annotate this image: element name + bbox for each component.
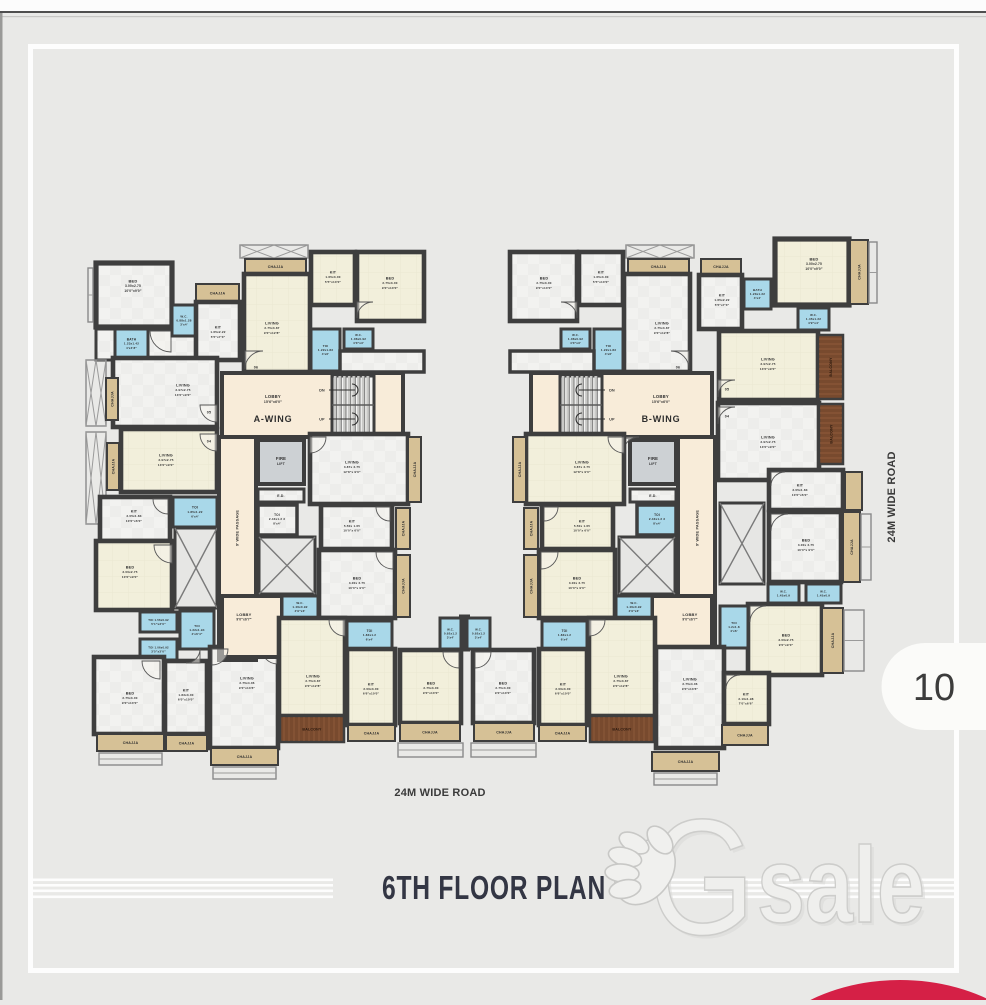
svg-text:2.75x3.00: 2.75x3.00 — [423, 686, 438, 690]
svg-text:3.00x2.75: 3.00x2.75 — [806, 262, 822, 266]
svg-text:3.97x2.75: 3.97x2.75 — [175, 388, 190, 392]
svg-text:4′x6′: 4′x6′ — [322, 352, 330, 356]
svg-text:1.45x0.9: 1.45x0.9 — [777, 594, 790, 598]
svg-text:6′x4′: 6′x4′ — [366, 637, 374, 641]
svg-text:4′x6′: 4′x6′ — [605, 352, 613, 356]
svg-text:9′0″x10′0″: 9′0″x10′0″ — [536, 286, 553, 290]
svg-text:BED: BED — [809, 256, 818, 261]
svg-text:CHAJJA: CHAJJA — [850, 539, 854, 555]
svg-text:BED: BED — [126, 565, 135, 569]
svg-text:15′6″x6′0″: 15′6″x6′0″ — [652, 400, 670, 404]
svg-text:4′x4′: 4′x4′ — [754, 296, 762, 300]
svg-text:CHAJJA: CHAJJA — [529, 578, 533, 594]
svg-text:E.D.: E.D. — [649, 494, 656, 498]
svg-text:2.10x1.98: 2.10x1.98 — [738, 697, 753, 701]
svg-text:BED: BED — [386, 276, 395, 280]
svg-text:9′0″x6′7″: 9′0″x6′7″ — [682, 618, 698, 622]
svg-text:A-WING: A-WING — [254, 414, 293, 424]
svg-text:3.87x 2.75: 3.87x 2.75 — [574, 465, 590, 469]
svg-text:CHAJJA: CHAJJA — [555, 731, 571, 735]
svg-text:05: 05 — [725, 387, 729, 391]
svg-text:BED: BED — [128, 278, 137, 283]
svg-text:7′0″x6′6″: 7′0″x6′6″ — [739, 702, 754, 706]
svg-text:CHAJJA: CHAJJA — [401, 521, 405, 537]
svg-text:9′0″x13′6″: 9′0″x13′6″ — [682, 687, 699, 691]
svg-text:9′0″x9′0″: 9′0″x9′0″ — [779, 643, 794, 647]
svg-text:10′0″x 9′0″: 10′0″x 9′0″ — [568, 586, 586, 590]
svg-text:LIVING: LIVING — [345, 460, 359, 464]
svg-text:10′0″x9′0″: 10′0″x9′0″ — [805, 267, 822, 271]
svg-text:KIT: KIT — [719, 294, 726, 298]
svg-text:KIT: KIT — [797, 484, 804, 488]
svg-text:BED: BED — [126, 691, 135, 695]
svg-text:4′3″x3′: 4′3″x3′ — [353, 341, 364, 345]
svg-text:BALCONY: BALCONY — [829, 424, 833, 444]
svg-text:BALCONY: BALCONY — [612, 727, 632, 731]
svg-text:3′x4′: 3′x4′ — [447, 635, 455, 639]
svg-text:2.00x3.00: 2.00x3.00 — [363, 687, 378, 691]
svg-text:LIVING: LIVING — [761, 435, 775, 439]
svg-text:10′0″x 9′0″: 10′0″x 9′0″ — [797, 548, 815, 552]
svg-text:10′0″x 6′0″: 10′0″x 6′0″ — [573, 529, 591, 533]
svg-text:3.97x2.75: 3.97x2.75 — [760, 362, 775, 366]
svg-text:4′x6′: 4′x6′ — [730, 629, 738, 633]
svg-text:LIVING: LIVING — [265, 321, 279, 325]
svg-text:3.00x2.75: 3.00x2.75 — [125, 284, 141, 288]
svg-text:9′0″x12′8″: 9′0″x12′8″ — [654, 331, 671, 335]
svg-text:CHAJJA: CHAJJA — [737, 733, 753, 737]
svg-text:BED: BED — [540, 276, 549, 280]
svg-text:LIVING: LIVING — [240, 676, 254, 680]
svg-text:2.75x3.87: 2.75x3.87 — [613, 679, 628, 683]
svg-text:3′x4′: 3′x4′ — [180, 323, 188, 327]
svg-text:3′5″x3′0″: 3′5″x3′0″ — [151, 650, 166, 654]
svg-text:LIVING: LIVING — [575, 460, 589, 464]
svg-text:LIVING: LIVING — [761, 357, 775, 361]
svg-text:BED: BED — [427, 681, 436, 685]
svg-text:9′0″x6′7″: 9′0″x6′7″ — [236, 618, 252, 622]
svg-text:LIFT: LIFT — [277, 462, 286, 466]
svg-text:06: 06 — [254, 365, 258, 369]
svg-text:9′0″x10′0″: 9′0″x10′0″ — [382, 286, 399, 290]
svg-text:6′x4′: 6′x4′ — [561, 637, 569, 641]
svg-text:4′x4′8″: 4′x4′8″ — [126, 346, 137, 350]
svg-text:BALCONY: BALCONY — [302, 727, 322, 731]
svg-text:13′0″x9′0″: 13′0″x9′0″ — [175, 393, 192, 397]
svg-text:2.43x1.2 3: 2.43x1.2 3 — [649, 517, 665, 521]
svg-text:2.75x3.87: 2.75x3.87 — [654, 326, 669, 330]
svg-text:3.87x 2.75: 3.87x 2.75 — [344, 465, 360, 469]
svg-text:CHAJJA: CHAJJA — [713, 265, 729, 269]
svg-text:CHAJJA: CHAJJA — [422, 730, 438, 734]
svg-text:9′0″x12′8″: 9′0″x12′8″ — [305, 684, 322, 688]
svg-text:10: 10 — [913, 667, 955, 709]
svg-text:LIFT: LIFT — [649, 462, 658, 466]
svg-text:10′0″x 9′0″: 10′0″x 9′0″ — [348, 586, 366, 590]
svg-text:UP: UP — [319, 417, 325, 421]
svg-text:2.75x3.00: 2.75x3.00 — [495, 686, 510, 690]
svg-text:BED: BED — [353, 576, 362, 580]
svg-text:1.65x3.00: 1.65x3.00 — [325, 275, 340, 279]
svg-text:6′0″x10′0″: 6′0″x10′0″ — [178, 698, 195, 702]
svg-text:4′9″x3′: 4′9″x3′ — [295, 609, 306, 613]
svg-text:BED: BED — [499, 681, 508, 685]
svg-text:DN: DN — [609, 388, 615, 392]
svg-text:4′9″x4′: 4′9″x4′ — [808, 321, 819, 325]
svg-text:LOBBY: LOBBY — [237, 612, 252, 617]
svg-text:3.05x1.83: 3.05x1.83 — [126, 514, 141, 518]
svg-text:CHAJJA: CHAJJA — [401, 578, 405, 594]
svg-text:3.05x1.83: 3.05x1.83 — [792, 488, 807, 492]
svg-text:3.97x2.75: 3.97x2.75 — [158, 458, 173, 462]
svg-text:1.83x3.00: 1.83x3.00 — [178, 693, 193, 697]
svg-text:5′5″x10′0″: 5′5″x10′0″ — [325, 280, 342, 284]
svg-text:9′ WIDE PASSAGE: 9′ WIDE PASSAGE — [235, 510, 239, 547]
svg-text:KIT: KIT — [330, 271, 337, 275]
svg-text:3.97x2.75: 3.97x2.75 — [760, 440, 775, 444]
svg-text:BED: BED — [802, 538, 811, 542]
svg-text:FIRE: FIRE — [276, 456, 286, 461]
svg-text:3.00x2.75: 3.00x2.75 — [778, 638, 793, 642]
svg-text:3.00x 2.75: 3.00x 2.75 — [798, 543, 814, 547]
svg-text:2.75x3.00: 2.75x3.00 — [122, 696, 137, 700]
svg-text:E.D.: E.D. — [277, 494, 284, 498]
svg-text:KIT: KIT — [598, 271, 605, 275]
svg-text:BED: BED — [782, 633, 791, 637]
svg-text:8′x4′: 8′x4′ — [273, 521, 281, 525]
svg-text:8′x4′: 8′x4′ — [653, 521, 661, 525]
svg-text:CHAJJA: CHAJJA — [268, 265, 284, 269]
svg-text:CHAJJA: CHAJJA — [110, 391, 114, 407]
svg-text:2.75x3.87: 2.75x3.87 — [305, 679, 320, 683]
svg-text:3′x4′: 3′x4′ — [475, 635, 483, 639]
svg-text:1.83x1.2: 1.83x1.2 — [558, 633, 571, 637]
svg-text:9′0″x13′6″: 9′0″x13′6″ — [239, 686, 256, 690]
svg-text:3.00x2.75: 3.00x2.75 — [122, 570, 137, 574]
svg-text:04: 04 — [725, 414, 729, 418]
svg-text:KIT: KIT — [183, 689, 190, 693]
svg-text:CHAJJA: CHAJJA — [123, 741, 139, 745]
svg-text:LOBBY: LOBBY — [683, 612, 698, 617]
svg-text:9′0″x12′8″: 9′0″x12′8″ — [613, 684, 630, 688]
svg-text:24M WIDE ROAD: 24M WIDE ROAD — [394, 787, 485, 799]
svg-text:CHAJJA: CHAJJA — [529, 521, 533, 537]
svg-text:KIT: KIT — [131, 510, 138, 514]
svg-text:04: 04 — [207, 439, 211, 443]
svg-text:1.85x1.22: 1.85x1.22 — [187, 510, 202, 514]
svg-text:13′0″x9′0″: 13′0″x9′0″ — [760, 445, 777, 449]
svg-text:LIVING: LIVING — [176, 383, 190, 387]
svg-text:13′0″x9′0″: 13′0″x9′0″ — [158, 463, 175, 467]
svg-text:BALCONY: BALCONY — [829, 357, 833, 377]
svg-text:5′5″x7′3″: 5′5″x7′3″ — [211, 335, 226, 339]
svg-text:1.65x2.22: 1.65x2.22 — [714, 298, 729, 302]
svg-text:2.75x4.06: 2.75x4.06 — [239, 681, 254, 685]
svg-text:LOBBY: LOBBY — [265, 394, 281, 399]
svg-text:9′0″x10′0″: 9′0″x10′0″ — [122, 701, 139, 705]
svg-text:12′8″x 9′0″: 12′8″x 9′0″ — [573, 470, 591, 474]
svg-text:12′8″x 9′0″: 12′8″x 9′0″ — [343, 470, 361, 474]
svg-text:2.75x4.06: 2.75x4.06 — [682, 682, 697, 686]
svg-text:LIVING: LIVING — [655, 321, 669, 325]
svg-text:10′0″x 6′0″: 10′0″x 6′0″ — [343, 529, 361, 533]
svg-text:KIT: KIT — [349, 520, 356, 524]
svg-text:CHAJJA: CHAJJA — [651, 265, 667, 269]
svg-text:6TH FLOOR PLAN: 6TH FLOOR PLAN — [382, 869, 606, 906]
svg-text:06: 06 — [676, 365, 680, 369]
svg-text:9′0″x10′0″: 9′0″x10′0″ — [495, 691, 512, 695]
svg-text:6′6″x10′0″: 6′6″x10′0″ — [363, 692, 380, 696]
svg-text:LOBBY: LOBBY — [653, 394, 669, 399]
svg-text:KIT: KIT — [579, 520, 586, 524]
svg-text:LIVING: LIVING — [159, 453, 173, 457]
svg-text:2.75x3.87: 2.75x3.87 — [264, 326, 279, 330]
svg-text:3.00x 2.75: 3.00x 2.75 — [569, 581, 585, 585]
svg-text:CHAJJA: CHAJJA — [678, 760, 694, 764]
svg-text:5.50x 1.65: 5.50x 1.65 — [574, 524, 590, 528]
svg-text:CHAJJA: CHAJJA — [496, 730, 512, 734]
svg-text:5′1″x3′0″: 5′1″x3′0″ — [151, 622, 166, 626]
svg-text:UP: UP — [609, 417, 615, 421]
svg-text:6′6″x10′0″: 6′6″x10′0″ — [555, 692, 572, 696]
svg-text:CHAJJA: CHAJJA — [210, 291, 226, 295]
svg-text:6′x4′: 6′x4′ — [191, 515, 199, 519]
svg-text:FIRE: FIRE — [648, 456, 658, 461]
svg-text:CHAJJA: CHAJJA — [179, 741, 195, 745]
svg-text:4′3″x3′: 4′3″x3′ — [570, 341, 581, 345]
svg-text:24M WIDE ROAD: 24M WIDE ROAD — [886, 451, 898, 542]
svg-text:4′9″x3′: 4′9″x3′ — [629, 609, 640, 613]
svg-text:1.65x3.00: 1.65x3.00 — [593, 275, 608, 279]
svg-text:1.83x1.2: 1.83x1.2 — [363, 633, 376, 637]
svg-text:9′0″x12′8″: 9′0″x12′8″ — [264, 331, 281, 335]
svg-text:LIVING: LIVING — [683, 677, 697, 681]
svg-text:10′0″x6′0″: 10′0″x6′0″ — [126, 519, 143, 523]
svg-text:CHAJJA: CHAJJA — [831, 633, 835, 649]
svg-text:05: 05 — [207, 410, 211, 414]
svg-text:1.65x2.22: 1.65x2.22 — [210, 330, 225, 334]
svg-text:4′x6′4″: 4′x6′4″ — [192, 632, 203, 636]
svg-text:B-WING: B-WING — [642, 414, 681, 424]
svg-text:sale: sale — [757, 824, 925, 945]
svg-text:CHAJJA: CHAJJA — [518, 462, 522, 478]
svg-text:CHAJJA: CHAJJA — [111, 459, 115, 475]
svg-text:5′5″x10′0″: 5′5″x10′0″ — [593, 280, 610, 284]
svg-text:13′0″x9′0″: 13′0″x9′0″ — [760, 367, 777, 371]
svg-text:15′6″x6′0″: 15′6″x6′0″ — [264, 400, 282, 404]
svg-text:KIT: KIT — [215, 326, 222, 330]
svg-text:9′ WIDE PASSAGE: 9′ WIDE PASSAGE — [695, 510, 699, 547]
svg-text:2.75x3.00: 2.75x3.00 — [382, 281, 397, 285]
svg-text:CHAJJA: CHAJJA — [857, 264, 861, 280]
svg-text:3.00x 2.75: 3.00x 2.75 — [349, 581, 365, 585]
svg-text:9′0″x10′0″: 9′0″x10′0″ — [423, 691, 440, 695]
svg-text:2.00x3.00: 2.00x3.00 — [555, 687, 570, 691]
svg-text:BED: BED — [573, 576, 582, 580]
svg-text:2.75x3.00: 2.75x3.00 — [536, 281, 551, 285]
svg-text:1.45x0.9: 1.45x0.9 — [817, 594, 830, 598]
svg-text:DN: DN — [319, 388, 325, 392]
svg-text:10′0″x6′0″: 10′0″x6′0″ — [792, 493, 809, 497]
svg-text:5′5″x7′3″: 5′5″x7′3″ — [715, 303, 730, 307]
svg-text:CHAJJA: CHAJJA — [364, 731, 380, 735]
svg-text:LIVING: LIVING — [614, 674, 628, 678]
svg-text:CHAJJA: CHAJJA — [413, 462, 417, 478]
svg-text:KIT: KIT — [560, 683, 567, 687]
svg-text:CHAJJA: CHAJJA — [237, 755, 253, 759]
svg-text:2.43x1.2 3: 2.43x1.2 3 — [269, 517, 285, 521]
svg-text:KIT: KIT — [743, 693, 750, 697]
svg-text:LIVING: LIVING — [306, 674, 320, 678]
svg-text:KIT: KIT — [368, 683, 375, 687]
svg-text:5.50x 1.65: 5.50x 1.65 — [344, 524, 360, 528]
svg-text:10′0″x9′0″: 10′0″x9′0″ — [122, 575, 139, 579]
svg-text:10′0″x9′0″: 10′0″x9′0″ — [124, 289, 141, 293]
